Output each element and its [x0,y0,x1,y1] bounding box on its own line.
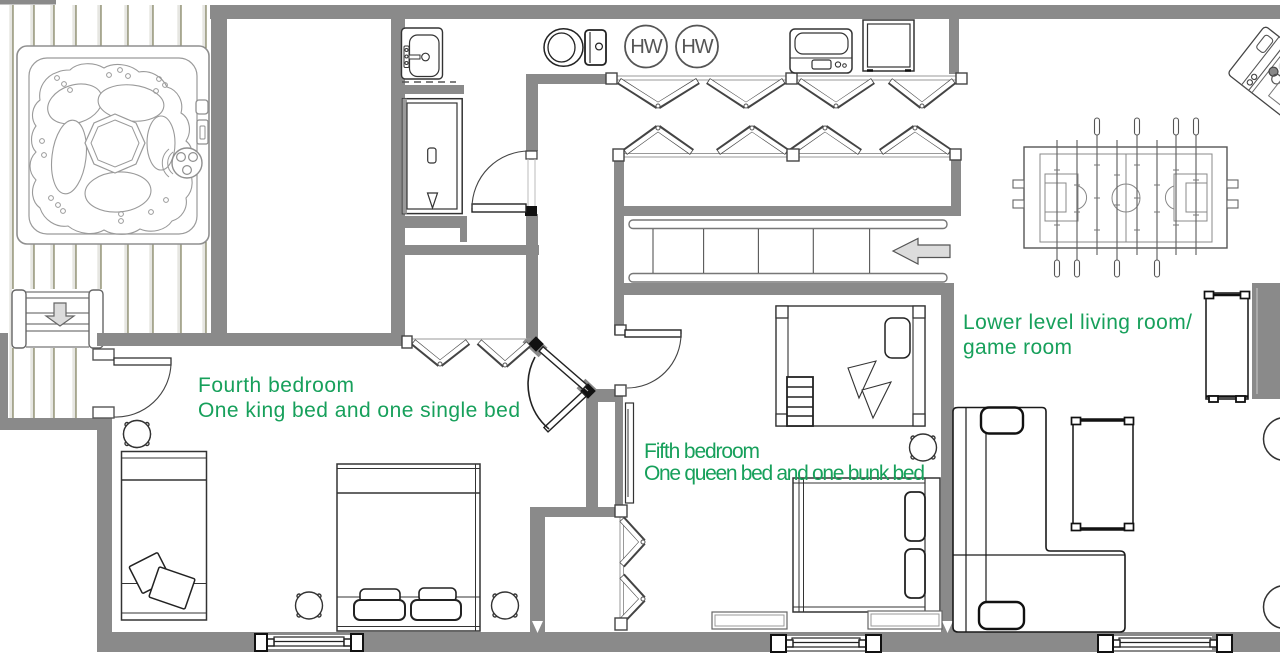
svg-text:Fifth bedroom: Fifth bedroom [644,440,760,463]
svg-text:Lower level living room/: Lower level living room/ [963,311,1192,334]
svg-text:HW: HW [630,36,662,58]
svg-text:Fourth bedroom: Fourth bedroom [198,374,354,397]
svg-text:game room: game room [963,336,1072,359]
svg-text:HW: HW [681,36,713,58]
svg-text:One king bed and one single be: One king bed and one single bed [198,399,520,422]
svg-text:One queen bed and one bunk bed: One queen bed and one bunk bed [644,462,925,485]
